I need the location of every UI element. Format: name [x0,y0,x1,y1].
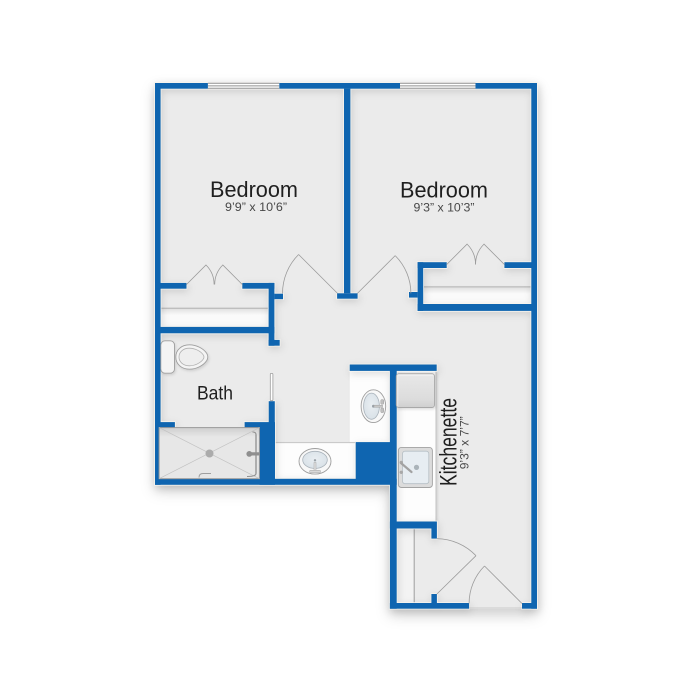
svg-text:Kitchenette: Kitchenette [435,398,462,486]
svg-text:Bedroom: Bedroom [400,178,488,203]
svg-text:Bedroom: Bedroom [210,177,298,202]
svg-text:Bath: Bath [197,383,233,404]
svg-text:9’9” x 10’6”: 9’9” x 10’6” [225,202,287,214]
svg-text:9’3” x 10’3”: 9’3” x 10’3” [414,203,475,215]
svg-text:9’3” x 7’7”: 9’3” x 7’7” [460,416,472,469]
